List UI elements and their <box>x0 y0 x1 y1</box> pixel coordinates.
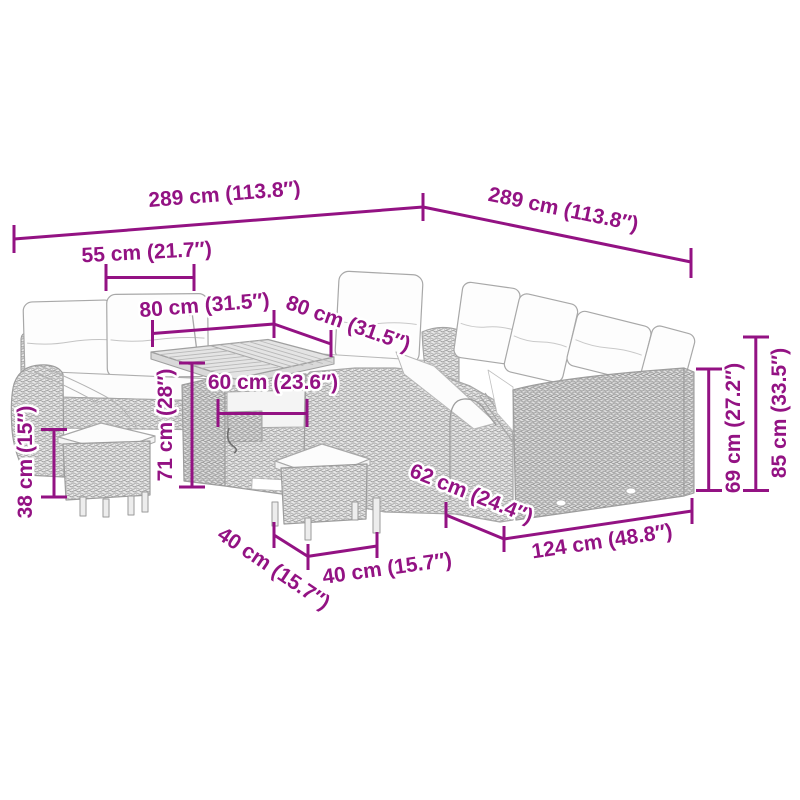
svg-text:38 cm (15″): 38 cm (15″) <box>14 406 37 519</box>
svg-text:60 cm (23.6″): 60 cm (23.6″) <box>208 371 338 394</box>
svg-text:69 cm (27.2″): 69 cm (27.2″) <box>722 363 745 493</box>
svg-text:85 cm (33.5″): 85 cm (33.5″) <box>768 348 791 478</box>
svg-text:71 cm (28″): 71 cm (28″) <box>154 369 177 482</box>
